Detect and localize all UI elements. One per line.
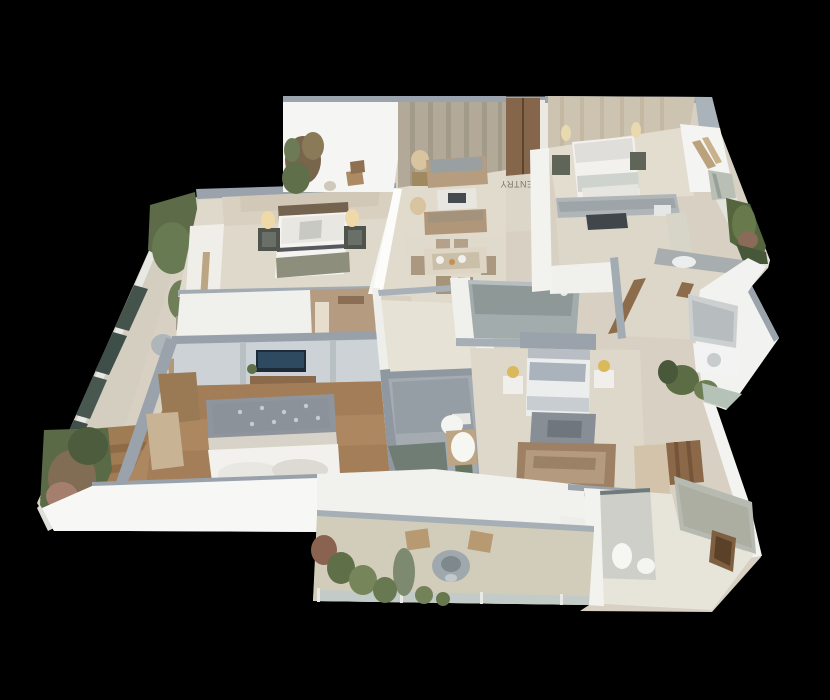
svg-text:ENTRY: ENTRY — [500, 179, 533, 189]
